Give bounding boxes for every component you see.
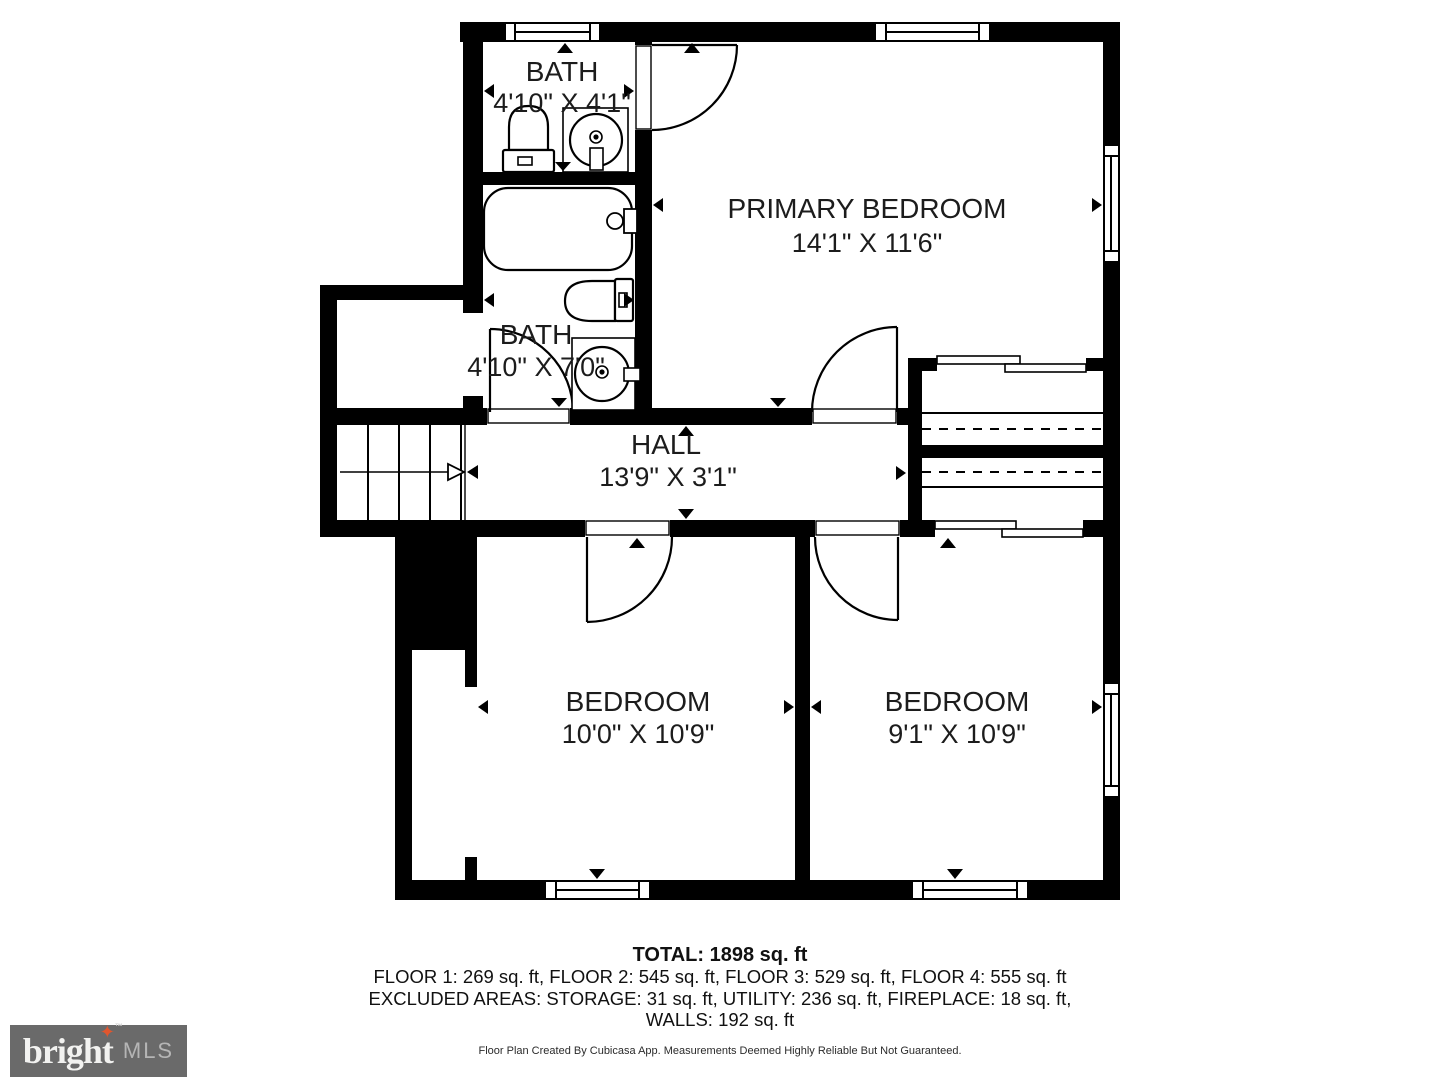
toilet-icon-middle-bath xyxy=(565,279,633,321)
room-dims-primary-bedroom: 14'1" X 11'6" xyxy=(792,228,943,258)
window-bedroom-left-bottom xyxy=(545,881,650,899)
room-dims-bath-top: 4'10" X 4'1" xyxy=(493,88,631,118)
sliding-door-bedroom-closet xyxy=(935,521,1083,537)
door-bedroom-left xyxy=(587,537,672,622)
logo-mls-text: MLS xyxy=(123,1038,174,1064)
window-bedroom-right-side xyxy=(1104,683,1119,797)
area-summary: TOTAL: 1898 sq. ft FLOOR 1: 269 sq. ft, … xyxy=(0,944,1440,1031)
disclaimer-text: Floor Plan Created By Cubicasa App. Meas… xyxy=(0,1045,1440,1057)
stairs xyxy=(340,425,465,520)
exterior-walls xyxy=(320,22,1120,900)
room-label-hall: HALL xyxy=(631,429,701,460)
sliding-door-primary-closet xyxy=(937,356,1086,372)
room-dims-bedroom-right: 9'1" X 10'9" xyxy=(888,719,1026,749)
room-label-primary-bedroom: PRIMARY BEDROOM xyxy=(727,193,1006,224)
floor-plan-drawing: BATH 4'10" X 4'1" PRIMARY BEDROOM 14'1" … xyxy=(0,0,1440,930)
bathtub-icon xyxy=(484,188,637,270)
dimension-markers xyxy=(467,43,1102,879)
room-label-bath-top: BATH xyxy=(526,56,599,87)
star-icon: ✦ xyxy=(100,1024,115,1042)
room-label-bedroom-right: BEDROOM xyxy=(885,686,1030,717)
trademark-symbol: ™ xyxy=(115,1023,123,1031)
door-bedroom-right xyxy=(815,537,898,620)
interior-walls xyxy=(320,22,1120,880)
excluded-areas: EXCLUDED AREAS: STORAGE: 31 sq. ft, UTIL… xyxy=(0,988,1440,1010)
window-bath-top xyxy=(505,23,600,41)
wall-area: WALLS: 192 sq. ft xyxy=(0,1009,1440,1031)
door-bath-top xyxy=(652,45,737,130)
bright-mls-logo: bright ✦ ™ MLS xyxy=(10,1025,187,1077)
floor-areas: FLOOR 1: 269 sq. ft, FLOOR 2: 545 sq. ft… xyxy=(0,966,1440,988)
window-primary-right xyxy=(1104,145,1119,262)
room-dims-bedroom-left: 10'0" X 10'9" xyxy=(562,719,715,749)
room-dims-hall: 13'9" X 3'1" xyxy=(599,462,737,492)
total-area: TOTAL: 1898 sq. ft xyxy=(0,944,1440,966)
room-dims-bath-middle: 4'10" X 7'0" xyxy=(467,352,605,382)
door-primary-bedroom xyxy=(812,327,897,412)
window-bedroom-right-bottom xyxy=(912,881,1028,899)
window-primary-top xyxy=(875,23,990,41)
room-label-bedroom-left: BEDROOM xyxy=(566,686,711,717)
floor-plan-page: BATH 4'10" X 4'1" PRIMARY BEDROOM 14'1" … xyxy=(0,0,1440,1080)
room-label-bath-middle: BATH xyxy=(500,319,573,350)
